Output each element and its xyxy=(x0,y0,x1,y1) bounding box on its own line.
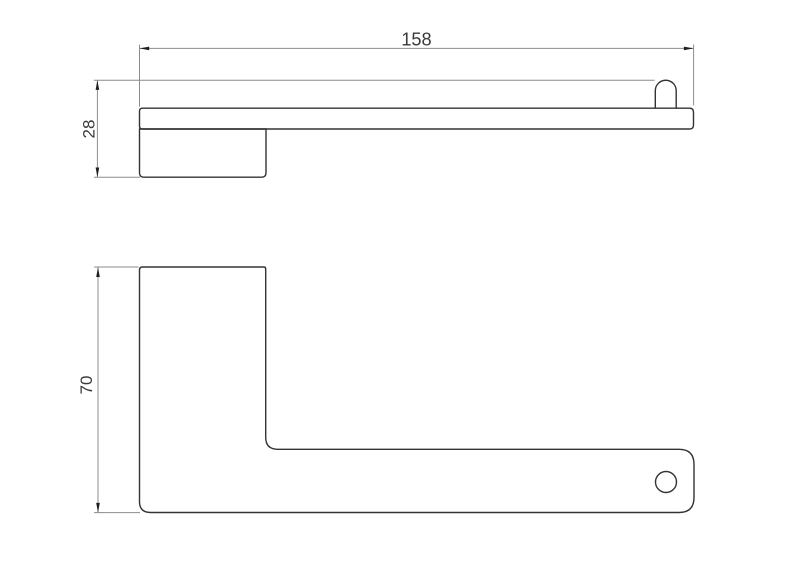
svg-text:70: 70 xyxy=(77,376,96,395)
svg-text:28: 28 xyxy=(80,120,99,139)
svg-text:158: 158 xyxy=(401,30,431,50)
